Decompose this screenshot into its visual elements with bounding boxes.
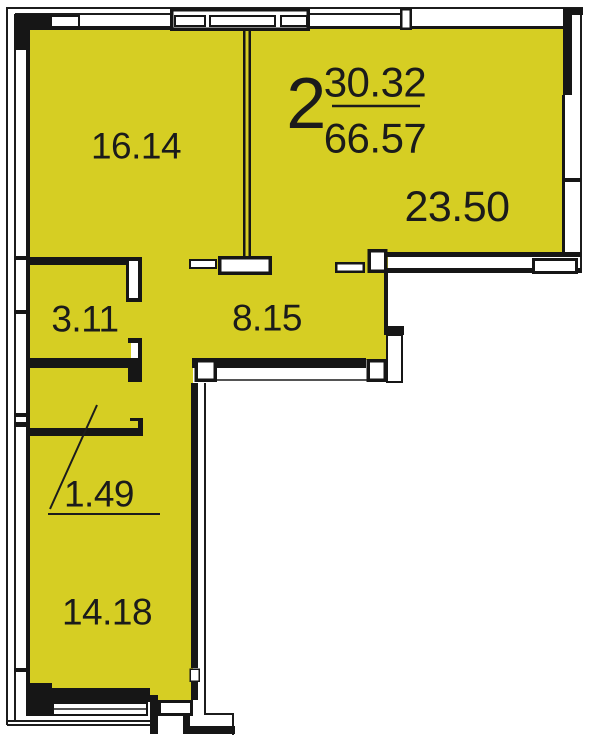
wall-top-face-mid (310, 26, 400, 29)
slot-311-jamb (129, 261, 138, 298)
wall-top-face-left (14, 26, 170, 30)
wall-1614-bottom (26, 257, 128, 265)
room-1-49-area-label: 1.49 (64, 474, 134, 515)
wall-left-tick-2 (14, 310, 30, 314)
wall-right-inner (562, 95, 565, 252)
wall-right-tick (563, 178, 581, 182)
corridor-post-right (368, 361, 385, 381)
fill-bottom-rooms (28, 360, 193, 700)
wall-left-tick-1 (14, 256, 26, 260)
door-2350-post (369, 251, 386, 272)
room-16-14-area-label: 16.14 (91, 126, 181, 167)
corridor-pier (387, 335, 402, 382)
room-8-15-area-label: 8.15 (232, 298, 302, 339)
floor-plan-drawing: 16.14 2 30.32 66.57 23.50 3.11 8.15 1.49… (0, 0, 600, 738)
window-block-pane-3 (281, 16, 307, 26)
wall-left-face (26, 30, 30, 690)
wall-tr-post (563, 8, 572, 95)
wall-step-horizontal (183, 726, 235, 734)
wall-bottom-post (150, 695, 158, 734)
window-top-small-pane (51, 16, 79, 27)
corridor-post-left (196, 361, 215, 381)
unit-number-label: 2 (286, 64, 326, 144)
wall-left-tick-4 (14, 422, 30, 427)
wall-column-right-upper (191, 383, 198, 668)
slot-311-stub (131, 343, 138, 358)
door-2350-leaf (336, 263, 364, 272)
wall-311-stub-edge (138, 338, 142, 360)
window-right-ledge (534, 260, 577, 273)
entry-door-gap (190, 669, 199, 681)
wall-left-tick-3 (14, 413, 30, 417)
room-3-11-area-label: 3.11 (51, 299, 118, 340)
wall-column-right-lower (191, 682, 198, 700)
wall-311-end-block (128, 358, 142, 382)
door-1614-leaf (190, 260, 216, 268)
unit-living-area-label: 30.32 (324, 59, 427, 106)
wall-corridor-bottom (192, 358, 366, 368)
room-23-50-area-label: 23.50 (404, 183, 509, 231)
window-block-pane-1 (175, 16, 205, 26)
door-1614-frame (220, 258, 271, 274)
balcony-door-box (160, 702, 192, 715)
unit-total-area-label: 66.57 (324, 115, 427, 162)
wall-311-bottom (26, 358, 130, 368)
wall-top-face-right (412, 26, 563, 29)
wall-tr-connector (563, 8, 583, 15)
wall-partition-right-line (249, 31, 252, 256)
wall-corridor-right (384, 273, 388, 328)
floor-plan-page: 16.14 2 30.32 66.57 23.50 3.11 8.15 1.49… (0, 0, 600, 738)
wall-pier-cap (384, 326, 404, 335)
room-14-18-area-label: 14.18 (62, 592, 152, 633)
window-top-post (401, 9, 411, 29)
wall-closet-hook-h (130, 418, 143, 421)
window-block-pane-2 (210, 16, 275, 26)
wall-bottom-band (26, 688, 150, 702)
contour-column-right (205, 383, 233, 735)
wall-left-tick-5 (14, 668, 30, 672)
wall-2350-bottom-a (387, 252, 581, 257)
wall-partition-left-line (243, 31, 246, 256)
